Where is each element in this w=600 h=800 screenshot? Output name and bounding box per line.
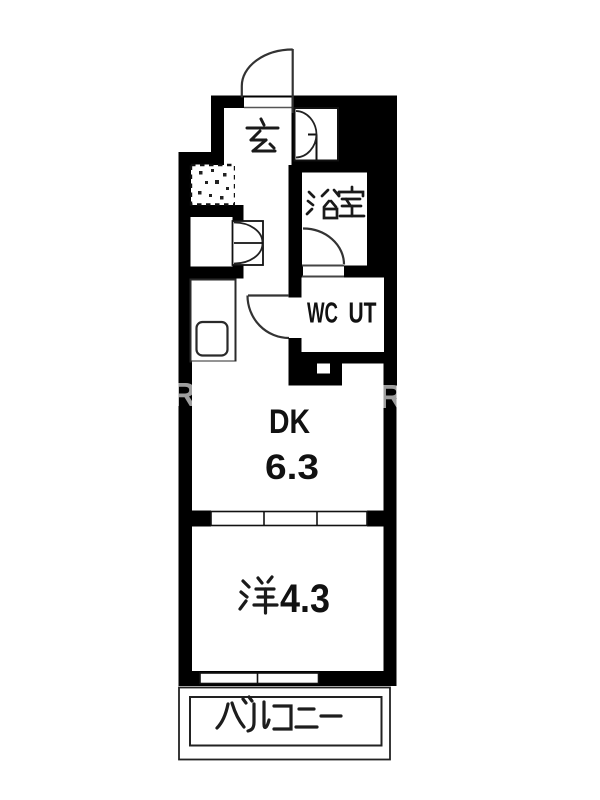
svg-text:6.3: 6.3	[265, 448, 319, 487]
svg-text:R: R	[379, 378, 403, 415]
svg-text:R: R	[172, 376, 196, 413]
svg-text:DK: DK	[269, 403, 310, 441]
svg-text:UT: UT	[349, 298, 377, 330]
svg-text:WC: WC	[307, 298, 338, 330]
svg-text:4.3: 4.3	[280, 577, 330, 621]
